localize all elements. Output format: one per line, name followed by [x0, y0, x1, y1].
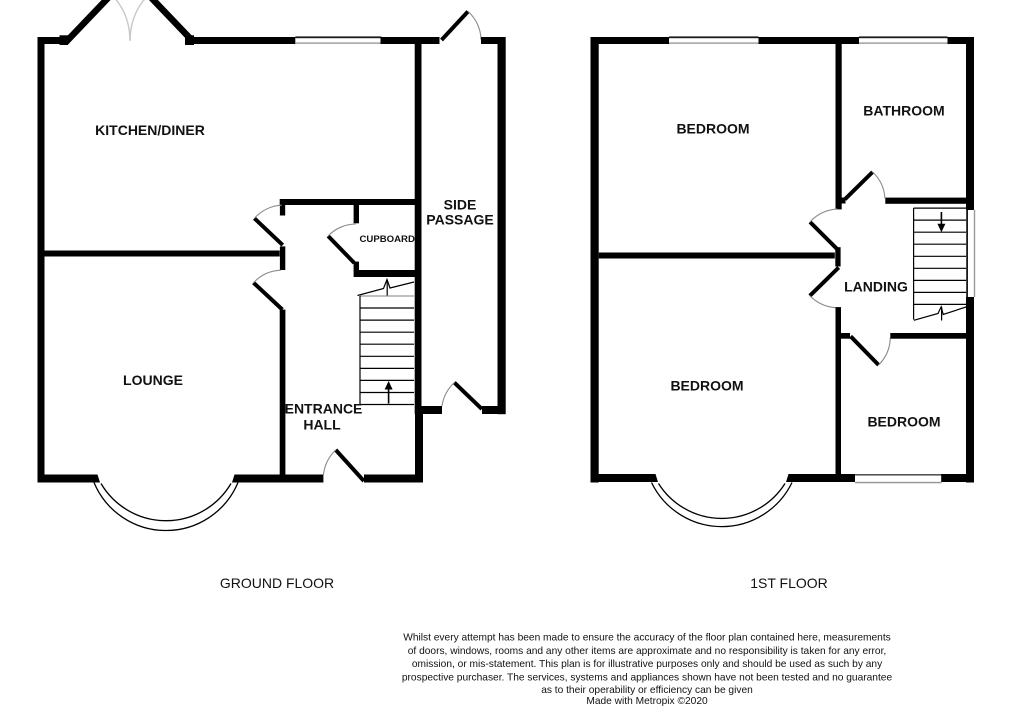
svg-text:GROUND FLOOR: GROUND FLOOR — [220, 575, 334, 591]
svg-text:prospective purchaser. The ser: prospective purchaser. The services, sys… — [402, 672, 893, 683]
svg-text:HALL: HALL — [303, 417, 341, 433]
svg-text:PASSAGE: PASSAGE — [426, 212, 493, 228]
svg-text:Made with Metropix ©2020: Made with Metropix ©2020 — [586, 696, 708, 706]
svg-text:1ST FLOOR: 1ST FLOOR — [750, 575, 828, 591]
svg-text:LANDING: LANDING — [844, 279, 908, 295]
svg-text:BEDROOM: BEDROOM — [670, 378, 743, 394]
svg-text:CUPBOARD: CUPBOARD — [359, 234, 415, 245]
svg-text:BEDROOM: BEDROOM — [867, 414, 940, 430]
svg-text:as to their operability or eff: as to their operability or efficiency ca… — [541, 685, 753, 696]
svg-text:omission, or mis-statement. Th: omission, or mis-statement. This plan is… — [412, 659, 883, 670]
svg-text:BEDROOM: BEDROOM — [676, 121, 749, 137]
svg-text:BATHROOM: BATHROOM — [863, 102, 944, 118]
svg-text:of doors, windows, rooms and a: of doors, windows, rooms and any other i… — [408, 646, 886, 657]
svg-text:Whilst every attempt has been: Whilst every attempt has been made to en… — [403, 633, 891, 644]
svg-text:KITCHEN/DINER: KITCHEN/DINER — [95, 122, 205, 138]
svg-text:LOUNGE: LOUNGE — [123, 372, 183, 388]
svg-text:SIDE: SIDE — [444, 197, 477, 213]
svg-text:ENTRANCE: ENTRANCE — [285, 401, 363, 417]
